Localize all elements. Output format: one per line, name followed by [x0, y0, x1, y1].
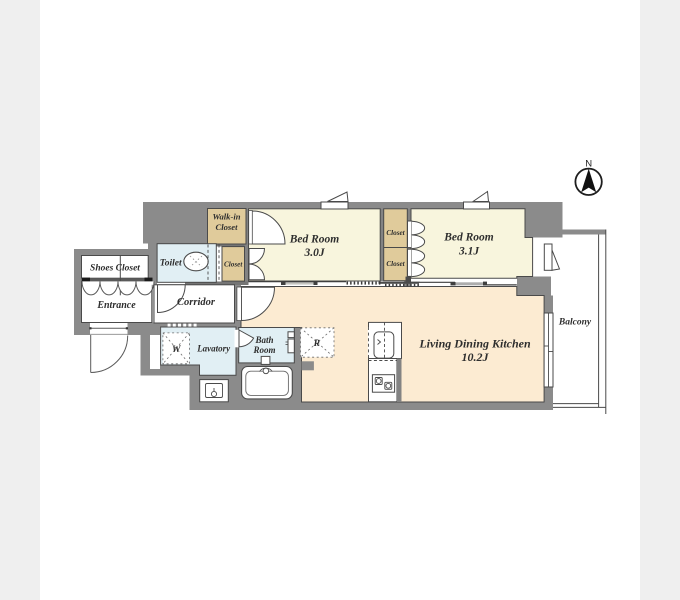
- svg-text:Lavatory: Lavatory: [196, 344, 231, 354]
- svg-text:Closet: Closet: [224, 261, 243, 269]
- svg-text:Walk-in: Walk-in: [212, 212, 240, 222]
- svg-text:N: N: [585, 159, 592, 170]
- svg-text:Entrance: Entrance: [96, 300, 136, 311]
- svg-text:Room: Room: [252, 345, 275, 355]
- svg-text:Bath: Bath: [254, 335, 273, 345]
- svg-text:3.0J: 3.0J: [303, 247, 325, 259]
- svg-text:Bed Room: Bed Room: [289, 234, 340, 246]
- svg-text:10.2J: 10.2J: [462, 350, 490, 364]
- svg-text:Closet: Closet: [216, 222, 239, 232]
- svg-text:Closet: Closet: [386, 260, 405, 268]
- svg-text:R: R: [313, 339, 320, 349]
- svg-text:W: W: [172, 345, 181, 355]
- svg-text:Closet: Closet: [386, 229, 405, 237]
- svg-text:Corridor: Corridor: [177, 297, 216, 308]
- svg-text:Bed Room: Bed Room: [443, 232, 494, 244]
- svg-text:Balcony: Balcony: [558, 318, 592, 328]
- svg-text:Shoes Closet: Shoes Closet: [90, 264, 140, 274]
- svg-text:Living Dining Kitchen: Living Dining Kitchen: [418, 337, 531, 351]
- svg-text:3.1J: 3.1J: [458, 246, 480, 258]
- svg-text:Toilet: Toilet: [160, 259, 182, 269]
